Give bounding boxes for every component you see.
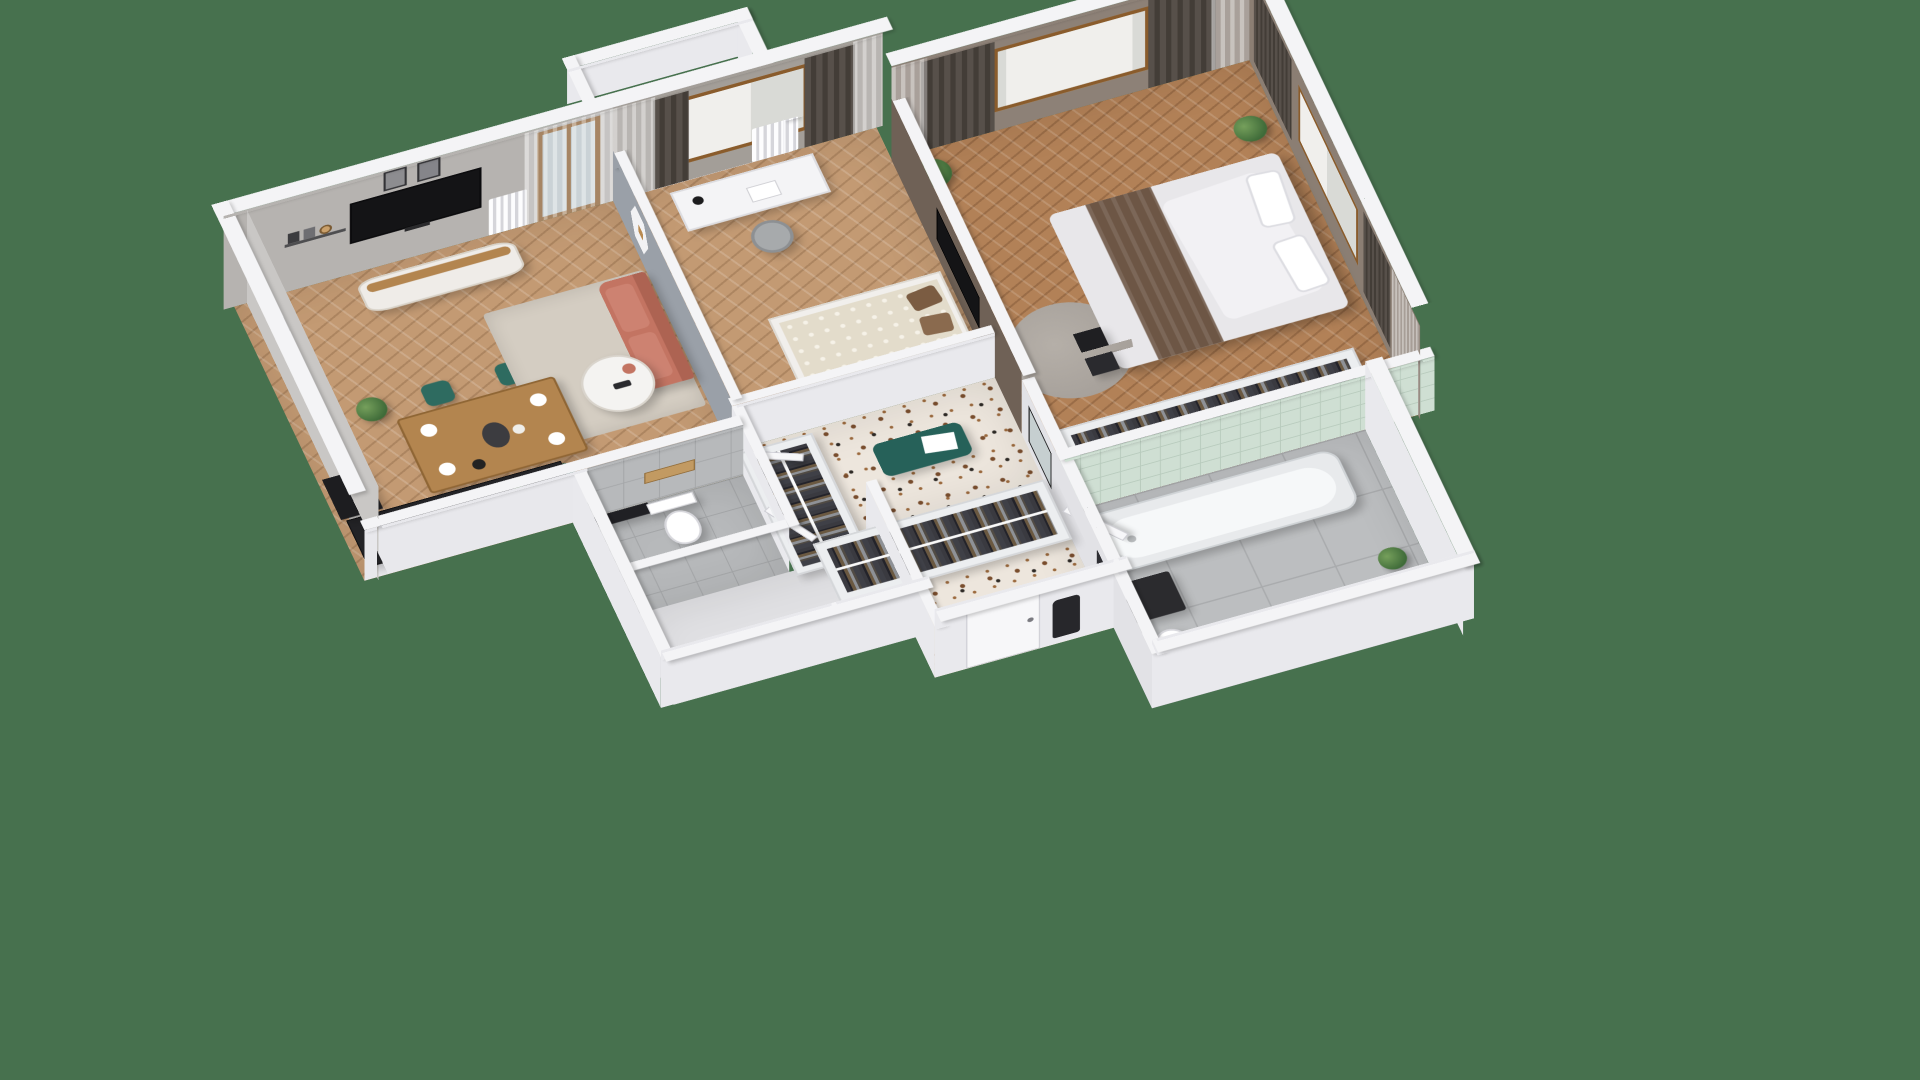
- tv: [350, 167, 482, 244]
- bench-tray: [921, 432, 958, 454]
- window-blind: [1006, 14, 1132, 105]
- sheer-curtain: [1211, 0, 1255, 71]
- curtain-brown: [805, 44, 856, 147]
- vase: [620, 362, 637, 375]
- plate-dark: [470, 458, 487, 471]
- desk-lamp: [691, 195, 705, 206]
- curtain-brown: [653, 91, 689, 190]
- centerpiece: [478, 419, 515, 450]
- plate: [436, 461, 458, 477]
- plate: [418, 422, 440, 438]
- apartment-render-scene: [0, 0, 1920, 1080]
- open-book: [746, 180, 782, 203]
- window-blind: [688, 83, 751, 160]
- jug: [511, 423, 527, 435]
- floor-plan: [161, 0, 1558, 980]
- coat: [1053, 594, 1080, 639]
- remote: [613, 379, 633, 389]
- plate: [528, 392, 550, 408]
- plate: [546, 430, 568, 446]
- sheer-curtain: [853, 34, 882, 134]
